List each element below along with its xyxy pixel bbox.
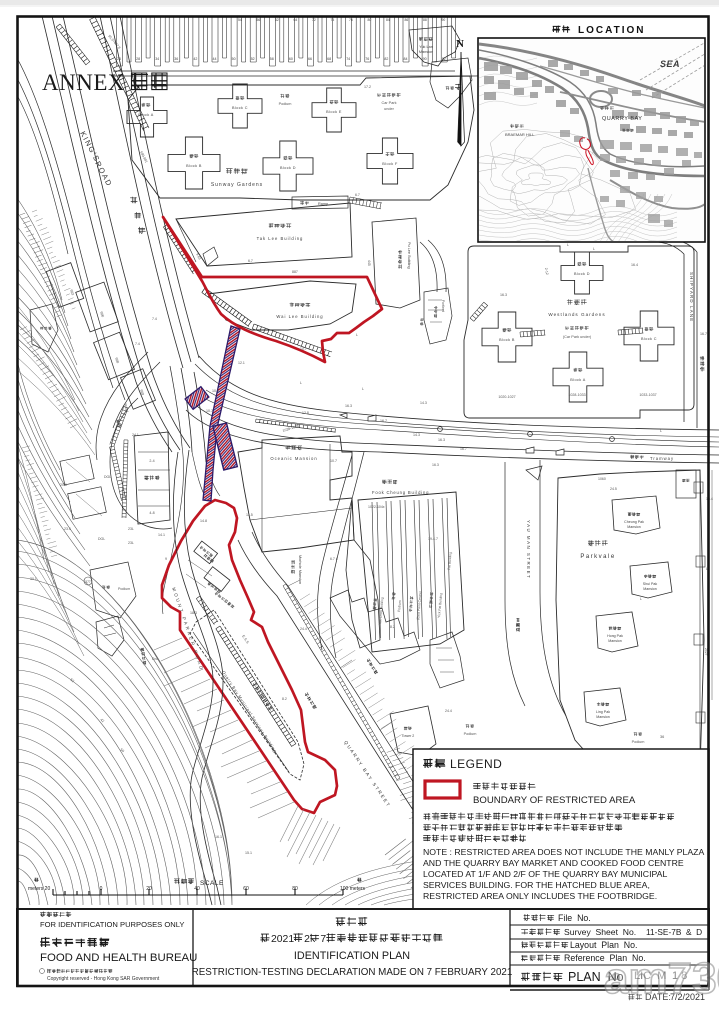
svg-text:DGL: DGL: [98, 537, 105, 541]
svg-text:Yuk Lan: Yuk Lan: [419, 45, 433, 49]
svg-text:16.1: 16.1: [215, 835, 222, 839]
svg-text:36: 36: [660, 735, 664, 739]
svg-text:15.1: 15.1: [245, 851, 252, 855]
svg-text:File No.: File No.: [558, 913, 591, 923]
svg-text:16.7: 16.7: [380, 419, 387, 423]
svg-text:Block A: Block A: [570, 378, 586, 382]
svg-text:10.7: 10.7: [206, 409, 213, 413]
svg-text:Mansion: Mansion: [643, 587, 657, 591]
svg-text:NOTE : RESTRICTED AREA DOES NO: NOTE : RESTRICTED AREA DOES NOT INCLUDE …: [423, 847, 704, 857]
svg-text:Copyright reserved - Hong Kong: Copyright reserved - Hong Kong SAR Gover…: [47, 976, 160, 982]
svg-text:12.8: 12.8: [302, 411, 309, 415]
svg-text:64: 64: [294, 18, 298, 22]
svg-text:74: 74: [331, 18, 335, 22]
svg-text:Podium: Podium: [632, 740, 645, 744]
svg-text:Hong Pak: Hong Pak: [607, 634, 623, 638]
svg-text:Oceanic Mansion: Oceanic Mansion: [270, 456, 317, 461]
svg-text:SERVICES BUILDING. FOR THE HAT: SERVICES BUILDING. FOR THE HATCHED BLUE …: [423, 880, 650, 890]
svg-text:14.8: 14.8: [200, 519, 207, 523]
svg-text:16.3: 16.3: [438, 438, 445, 442]
svg-text:90: 90: [442, 18, 446, 22]
svg-text:7.4: 7.4: [152, 317, 157, 321]
svg-text:AND THE QUARRY BAY MARKET AND: AND THE QUARRY BAY MARKET AND COOKED FOO…: [423, 858, 684, 868]
svg-text:88: 88: [423, 18, 427, 22]
svg-text:16.7: 16.7: [700, 332, 707, 336]
svg-text:2: 2: [304, 934, 310, 945]
svg-text:SCALE: SCALE: [200, 880, 224, 887]
svg-text:meters 20: meters 20: [28, 886, 50, 892]
svg-text:445: 445: [367, 260, 371, 266]
svg-text:66: 66: [308, 57, 312, 61]
svg-text:Westlands Gardens: Westlands Gardens: [548, 312, 605, 317]
svg-text:44: 44: [213, 57, 217, 61]
svg-text:100 meters: 100 meters: [340, 886, 366, 892]
svg-text:Podium: Podium: [464, 732, 477, 736]
svg-text:10.1: 10.1: [212, 389, 219, 393]
svg-text:24.4: 24.4: [300, 627, 307, 631]
svg-text:Survey Sheet No.: Survey Sheet No.: [564, 927, 636, 937]
svg-text:Block F: Block F: [382, 162, 398, 166]
svg-text:1022-104x: 1022-104x: [368, 505, 385, 509]
svg-text:Podium: Podium: [118, 587, 130, 591]
svg-text:9: 9: [165, 557, 167, 561]
svg-text:36: 36: [174, 57, 178, 61]
svg-text:14.3: 14.3: [413, 433, 420, 437]
svg-text:23L: 23L: [128, 527, 134, 531]
svg-text:Block D: Block D: [280, 166, 296, 170]
svg-text:20: 20: [146, 886, 152, 892]
svg-text:under: under: [384, 107, 394, 111]
svg-text:7.4: 7.4: [135, 342, 140, 346]
svg-text:N: N: [456, 38, 464, 50]
svg-text:Fortleet: Fortleet: [441, 300, 445, 312]
svg-text:8.2: 8.2: [282, 697, 287, 701]
svg-text:YAU MAN STREET: YAU MAN STREET: [526, 520, 531, 579]
svg-text:1028-1033: 1028-1033: [568, 393, 585, 397]
svg-text:L: L: [593, 247, 595, 251]
svg-text:34: 34: [155, 57, 159, 61]
svg-text:Shui Pak: Shui Pak: [643, 582, 658, 586]
svg-text:L: L: [640, 597, 642, 601]
svg-text:86: 86: [405, 18, 409, 22]
svg-text:FOOD AND HEALTH BUREAU: FOOD AND HEALTH BUREAU: [40, 952, 197, 964]
svg-text:82: 82: [384, 57, 388, 61]
svg-text:1033-1037: 1033-1037: [639, 393, 656, 397]
svg-text:14.1: 14.1: [158, 533, 165, 537]
svg-text:Block C: Block C: [641, 337, 657, 341]
svg-text:4-8: 4-8: [149, 511, 154, 515]
svg-text:FOR IDENTIFICATION PURPOSES ON: FOR IDENTIFICATION PURPOSES ONLY: [40, 920, 184, 929]
svg-text:LOCATION: LOCATION: [578, 25, 645, 36]
svg-text:Block B: Block B: [186, 164, 202, 168]
svg-text:26: 26: [117, 57, 121, 61]
svg-text:Sunway Gardens: Sunway Gardens: [211, 182, 263, 188]
svg-text:60: 60: [289, 57, 293, 61]
svg-text:52: 52: [251, 57, 255, 61]
svg-text:Podium: Podium: [279, 102, 292, 106]
svg-text:Mansion: Mansion: [608, 639, 622, 643]
svg-text:24.4: 24.4: [445, 709, 452, 713]
svg-text:887: 887: [292, 270, 298, 274]
svg-text:84: 84: [404, 57, 408, 61]
svg-text:2-4: 2-4: [149, 459, 154, 463]
svg-text:60: 60: [243, 886, 249, 892]
svg-text:L: L: [660, 429, 662, 433]
svg-text:L: L: [362, 387, 364, 391]
svg-text:6.7: 6.7: [355, 193, 360, 197]
svg-text:80: 80: [292, 886, 298, 892]
svg-text:14.3: 14.3: [420, 401, 427, 405]
svg-text:BOUNDARY OF RESTRICTED AREA: BOUNDARY OF RESTRICTED AREA: [473, 795, 636, 806]
svg-text:Layout Plan No.: Layout Plan No.: [570, 940, 637, 950]
svg-text:56: 56: [257, 18, 261, 22]
svg-text:58: 58: [270, 57, 274, 61]
svg-text:1020-1027: 1020-1027: [498, 395, 515, 399]
svg-text:Mansion: Mansion: [596, 715, 610, 719]
svg-text:am730: am730: [604, 954, 719, 1003]
svg-text:16.4: 16.4: [631, 263, 638, 267]
svg-text:11.5: 11.5: [246, 513, 253, 517]
svg-text:42: 42: [193, 57, 197, 61]
svg-text:10.7: 10.7: [330, 459, 337, 463]
svg-text:Tak Lee Building: Tak Lee Building: [257, 236, 304, 241]
svg-text:SEA: SEA: [660, 59, 680, 69]
svg-text:10.7: 10.7: [300, 347, 307, 351]
svg-text:LOCATED AT 1/F AND 2/F OF THE: LOCATED AT 1/F AND 2/F OF THE QUARRY BAY…: [423, 869, 667, 879]
svg-text:68: 68: [327, 57, 331, 61]
svg-text:16.3: 16.3: [345, 404, 352, 408]
svg-text:Morhole Mansion: Morhole Mansion: [298, 555, 302, 584]
svg-text:12.1: 12.1: [238, 361, 245, 365]
svg-text:IDENTIFICATION PLAN: IDENTIFICATION PLAN: [294, 950, 410, 962]
svg-text:19-4.7: 19-4.7: [428, 537, 438, 541]
svg-text:76: 76: [365, 57, 369, 61]
svg-text:QUARRY BAY: QUARRY BAY: [602, 116, 642, 122]
svg-text:Tower 2: Tower 2: [402, 734, 415, 738]
svg-text:24.5: 24.5: [610, 487, 617, 491]
svg-text:24.1: 24.1: [132, 433, 139, 437]
svg-text:SHIPYARD LANE: SHIPYARD LANE: [689, 272, 694, 322]
svg-text:0: 0: [100, 886, 103, 892]
svg-text:76: 76: [349, 18, 353, 22]
svg-text:LEGEND: LEGEND: [450, 757, 502, 771]
svg-text:Mansion: Mansion: [627, 525, 641, 529]
svg-text:11-SE-7B & D: 11-SE-7B & D: [646, 927, 702, 937]
svg-text:Block D: Block D: [574, 272, 590, 276]
svg-text:17.2: 17.2: [364, 85, 371, 89]
svg-text:DGL: DGL: [104, 475, 111, 479]
svg-text:Pu Lee Building: Pu Lee Building: [407, 242, 411, 269]
svg-text:6.7 L: 6.7 L: [330, 557, 338, 561]
svg-text:Block B: Block B: [499, 338, 515, 342]
svg-text:Car Park: Car Park: [382, 101, 397, 105]
svg-text:7: 7: [320, 934, 326, 945]
svg-text:Parkvale: Parkvale: [580, 554, 615, 560]
svg-text:Ling Pak: Ling Pak: [596, 710, 610, 714]
svg-text:16.3: 16.3: [500, 293, 507, 297]
svg-text:28: 28: [136, 57, 140, 61]
svg-text:16.3: 16.3: [432, 463, 439, 467]
svg-text:ANNEX: ANNEX: [42, 70, 125, 95]
svg-text:RESTRICTION-TESTING DECLARATIO: RESTRICTION-TESTING DECLARATION MADE ON …: [192, 967, 513, 978]
svg-text:23L: 23L: [128, 541, 134, 545]
svg-text:8.2: 8.2: [390, 625, 395, 629]
svg-text:74: 74: [346, 57, 350, 61]
svg-text:54: 54: [238, 18, 242, 22]
svg-text:16.7: 16.7: [460, 447, 467, 451]
svg-text:Block C: Block C: [232, 106, 248, 110]
svg-text:Wai Lee Building: Wai Lee Building: [276, 314, 323, 319]
svg-text:Block E: Block E: [326, 110, 342, 114]
svg-text:Mansion: Mansion: [419, 50, 433, 54]
svg-text:6.7: 6.7: [248, 259, 253, 263]
svg-text:Tramway: Tramway: [650, 456, 674, 461]
svg-text:84: 84: [386, 18, 390, 22]
svg-text:L: L: [567, 243, 569, 247]
svg-text:BRAEMAR HILL: BRAEMAR HILL: [505, 132, 535, 137]
svg-text:RESTRICTED AREA ONLY INCLUDES: RESTRICTED AREA ONLY INCLUDES THE FOOTBR…: [423, 891, 657, 901]
svg-text:2021: 2021: [271, 934, 294, 945]
svg-text:80: 80: [368, 18, 372, 22]
svg-text:Block A: Block A: [138, 113, 154, 117]
svg-text:Fook Cheung Building: Fook Cheung Building: [372, 490, 429, 495]
svg-text:(Car Park under): (Car Park under): [563, 335, 592, 339]
svg-text:18.3: 18.3: [190, 611, 197, 615]
svg-text:90: 90: [423, 57, 427, 61]
svg-text:62: 62: [275, 18, 279, 22]
svg-text:50: 50: [232, 57, 236, 61]
svg-text:1060: 1060: [598, 477, 606, 481]
svg-text:72: 72: [312, 18, 316, 22]
svg-text:L: L: [300, 381, 302, 385]
svg-text:Cheung Pak: Cheung Pak: [624, 520, 644, 524]
svg-text:L: L: [356, 333, 358, 337]
